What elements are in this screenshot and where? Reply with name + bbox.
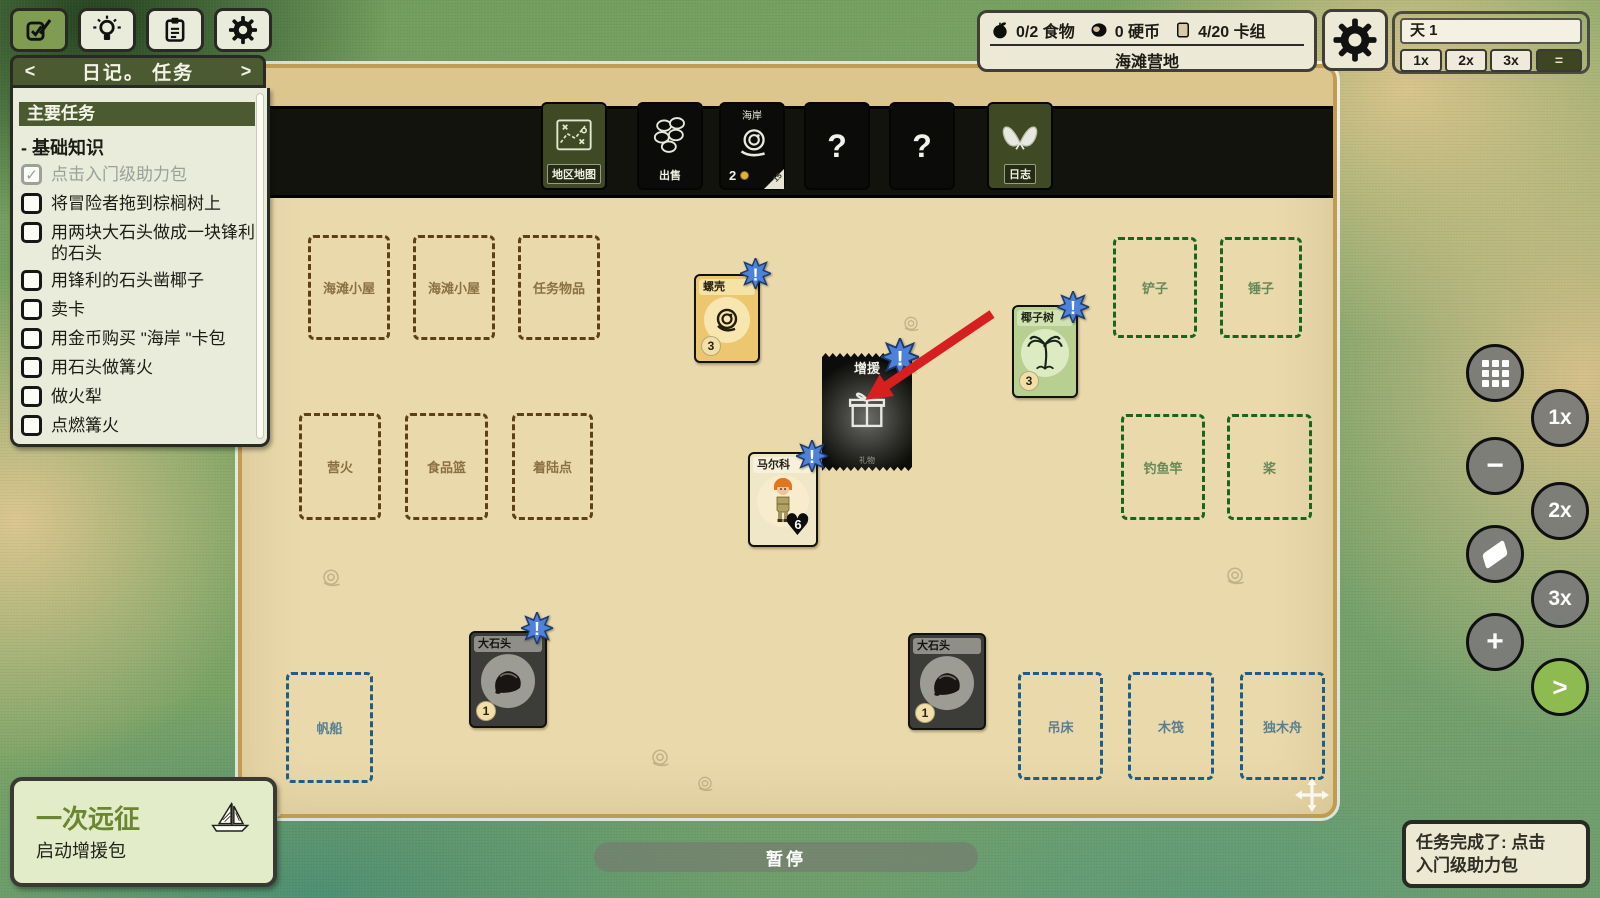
health-badge: ♥ 6	[784, 514, 812, 542]
board-move-handle[interactable]	[1294, 777, 1330, 813]
pack-unknown-1[interactable]: ?	[804, 102, 870, 190]
day-progress-bar: 天 1	[1400, 18, 1582, 44]
task-panel-scrollbar[interactable]	[256, 93, 264, 439]
pack-region-map[interactable]: 地区地图	[541, 102, 607, 190]
tab-ideas[interactable]	[78, 8, 136, 52]
tab-settings[interactable]	[214, 8, 272, 52]
gear-icon	[1332, 17, 1378, 63]
next-button[interactable]: >	[1531, 658, 1589, 716]
wings-icon	[997, 114, 1043, 154]
coin-count: 0 硬币	[1115, 18, 1160, 42]
slot-raft[interactable]: 木筏	[1128, 672, 1214, 780]
shell-doodle	[314, 564, 348, 592]
time-panel: 天 1 1x 2x 3x =	[1392, 11, 1590, 74]
settings-button[interactable]	[1322, 9, 1388, 71]
location-name: 海滩营地	[990, 46, 1304, 72]
question-icon: ?	[827, 128, 847, 165]
snail-icon	[731, 124, 773, 162]
speed-3x-button[interactable]: 3x	[1490, 49, 1532, 72]
shell-doodle	[643, 744, 677, 772]
tab-cardlist[interactable]	[146, 8, 204, 52]
deck-icon	[1174, 20, 1192, 40]
coins-icon	[648, 114, 692, 156]
slot-beach-hut-1[interactable]: 海滩小屋	[308, 235, 390, 340]
task-item[interactable]: 用两块大石头做成一块锋利的石头	[21, 222, 259, 264]
pack-coast[interactable]: 海岸 2 15	[719, 102, 785, 190]
coin-icon	[740, 171, 749, 180]
task-item[interactable]: ✓ 点击入门级助力包	[21, 164, 259, 186]
slot-fishing-rod[interactable]: 钓鱼竿	[1121, 414, 1205, 520]
task-panel: 主要任务 - 基础知识 ✓ 点击入门级助力包 将冒险者拖到棕榈树上 用两块大石头…	[10, 88, 270, 447]
zoom-3x-button[interactable]: 3x	[1531, 570, 1589, 628]
zoom-out-button[interactable]: −	[1466, 437, 1524, 495]
gear-icon	[228, 15, 258, 45]
zoom-1x-button[interactable]: 1x	[1531, 389, 1589, 447]
slot-sailboat[interactable]: 帆船	[286, 672, 373, 783]
checkbox-icon[interactable]	[21, 270, 42, 291]
pack-label: 地区地图	[547, 164, 601, 184]
pack-label: 出售	[655, 166, 685, 184]
card-title: 大石头	[913, 638, 981, 654]
card-count-badge: 3	[1019, 371, 1039, 391]
card-big-rock-1[interactable]: 大石头 1	[469, 631, 547, 728]
slot-paddle[interactable]: 桨	[1227, 414, 1312, 520]
food-icon	[990, 20, 1010, 40]
card-grid-button[interactable]	[1466, 344, 1524, 402]
expedition-panel[interactable]: 一次远征 启动增援包	[10, 777, 277, 887]
journal-next-button[interactable]: >	[229, 61, 263, 82]
zoom-in-button[interactable]: +	[1466, 613, 1524, 671]
tab-tasks[interactable]	[10, 8, 68, 52]
slot-beach-hut-2[interactable]: 海滩小屋	[413, 235, 495, 340]
task-item[interactable]: 用石头做篝火	[21, 357, 259, 379]
question-icon: ?	[912, 128, 932, 165]
card-big-rock-2[interactable]: 大石头 1	[908, 633, 986, 730]
sailboat-icon	[209, 797, 255, 841]
alert-star-icon	[740, 258, 771, 289]
task-item[interactable]: 做火犁	[21, 386, 259, 408]
status-bar: 0/2 食物 0 硬币 4/20 卡组 海滩营地	[977, 10, 1317, 72]
checkbox-icon[interactable]	[21, 328, 42, 349]
zoom-2x-button[interactable]: 2x	[1531, 482, 1589, 540]
grid-icon	[1482, 360, 1509, 387]
rock-icon	[481, 654, 535, 708]
pack-unknown-2[interactable]: ?	[889, 102, 955, 190]
journal-title: 日记。 任务	[47, 58, 229, 85]
checkbox-icon[interactable]	[21, 222, 42, 243]
slot-hammer[interactable]: 锤子	[1220, 237, 1302, 338]
alert-star-icon	[881, 338, 919, 376]
task-section-title: 主要任务	[19, 102, 255, 126]
task-item[interactable]: 卖卡	[21, 299, 259, 321]
pack-journal[interactable]: 日志	[987, 102, 1053, 190]
card-subtitle: 礼物	[822, 455, 912, 466]
game-screen: !	[0, 0, 1600, 898]
task-item[interactable]: 用金币购买 "海岸 "卡包	[21, 328, 259, 350]
expedition-title: 一次远征	[36, 799, 140, 836]
pack-title: 海岸	[742, 107, 762, 122]
slot-quest-items[interactable]: 任务物品	[518, 235, 600, 340]
task-item[interactable]: 将冒险者拖到棕榈树上	[21, 193, 259, 215]
task-item[interactable]: 用锋利的石头凿椰子	[21, 270, 259, 292]
expedition-subtitle: 启动增援包	[36, 837, 126, 863]
slot-canoe[interactable]: 独木舟	[1240, 672, 1325, 780]
clipboard-icon	[161, 15, 189, 45]
eraser-icon	[1482, 539, 1508, 569]
slot-landing-point[interactable]: 着陆点	[512, 413, 593, 520]
checklist-icon	[24, 16, 54, 44]
shell-doodle	[896, 312, 926, 336]
checkbox-icon[interactable]	[21, 357, 42, 378]
alert-star-icon	[521, 612, 553, 644]
deck-count: 4/20 卡组	[1198, 18, 1266, 42]
checkbox-checked-icon[interactable]: ✓	[21, 164, 42, 185]
checkbox-icon[interactable]	[21, 193, 42, 214]
eraser-button[interactable]	[1466, 525, 1524, 583]
task-item[interactable]: 点燃篝火	[21, 415, 259, 437]
checkbox-icon[interactable]	[21, 386, 42, 407]
checkbox-icon[interactable]	[21, 299, 42, 320]
card-count-badge: 1	[915, 703, 935, 723]
quest-complete-toast[interactable]: 任务完成了: 点击 入门级助力包	[1402, 820, 1590, 888]
coin-icon	[1089, 20, 1109, 40]
slot-hammock[interactable]: 吊床	[1018, 672, 1103, 780]
speed-1x-button[interactable]: 1x	[1400, 49, 1442, 72]
pack-label: 日志	[1004, 164, 1036, 184]
pack-sell[interactable]: 出售	[637, 102, 703, 190]
palm-tree-icon	[1021, 328, 1069, 376]
board-top-edge	[242, 68, 1333, 106]
lightbulb-icon	[92, 15, 122, 45]
journal-prev-button[interactable]: <	[13, 61, 47, 82]
slot-shovel[interactable]: 铲子	[1113, 237, 1197, 338]
pause-button[interactable]: 暂停	[594, 842, 978, 872]
card-count-badge: 1	[476, 701, 496, 721]
pack-shelf-band	[242, 106, 1333, 198]
slot-campfire[interactable]: 营火	[299, 413, 381, 520]
pack-price: 2	[729, 168, 736, 183]
task-group-title: - 基础知识	[21, 134, 104, 160]
speed-pause-button[interactable]: =	[1536, 49, 1582, 72]
card-count-badge: 3	[701, 336, 721, 356]
rock-icon	[920, 656, 974, 710]
chevron-right-icon: >	[1552, 672, 1567, 703]
map-icon	[553, 116, 595, 156]
speed-2x-button[interactable]: 2x	[1445, 49, 1487, 72]
alert-star-icon	[1057, 291, 1089, 323]
alert-star-icon	[796, 440, 828, 472]
checkbox-icon[interactable]	[21, 415, 42, 436]
slot-food-basket[interactable]: 食品篮	[405, 413, 488, 520]
journal-header: < 日记。 任务 >	[10, 55, 266, 88]
gift-icon	[841, 383, 893, 435]
shell-doodle	[690, 772, 720, 796]
shell-doodle	[1218, 562, 1252, 590]
food-count: 0/2 食物	[1016, 18, 1075, 42]
